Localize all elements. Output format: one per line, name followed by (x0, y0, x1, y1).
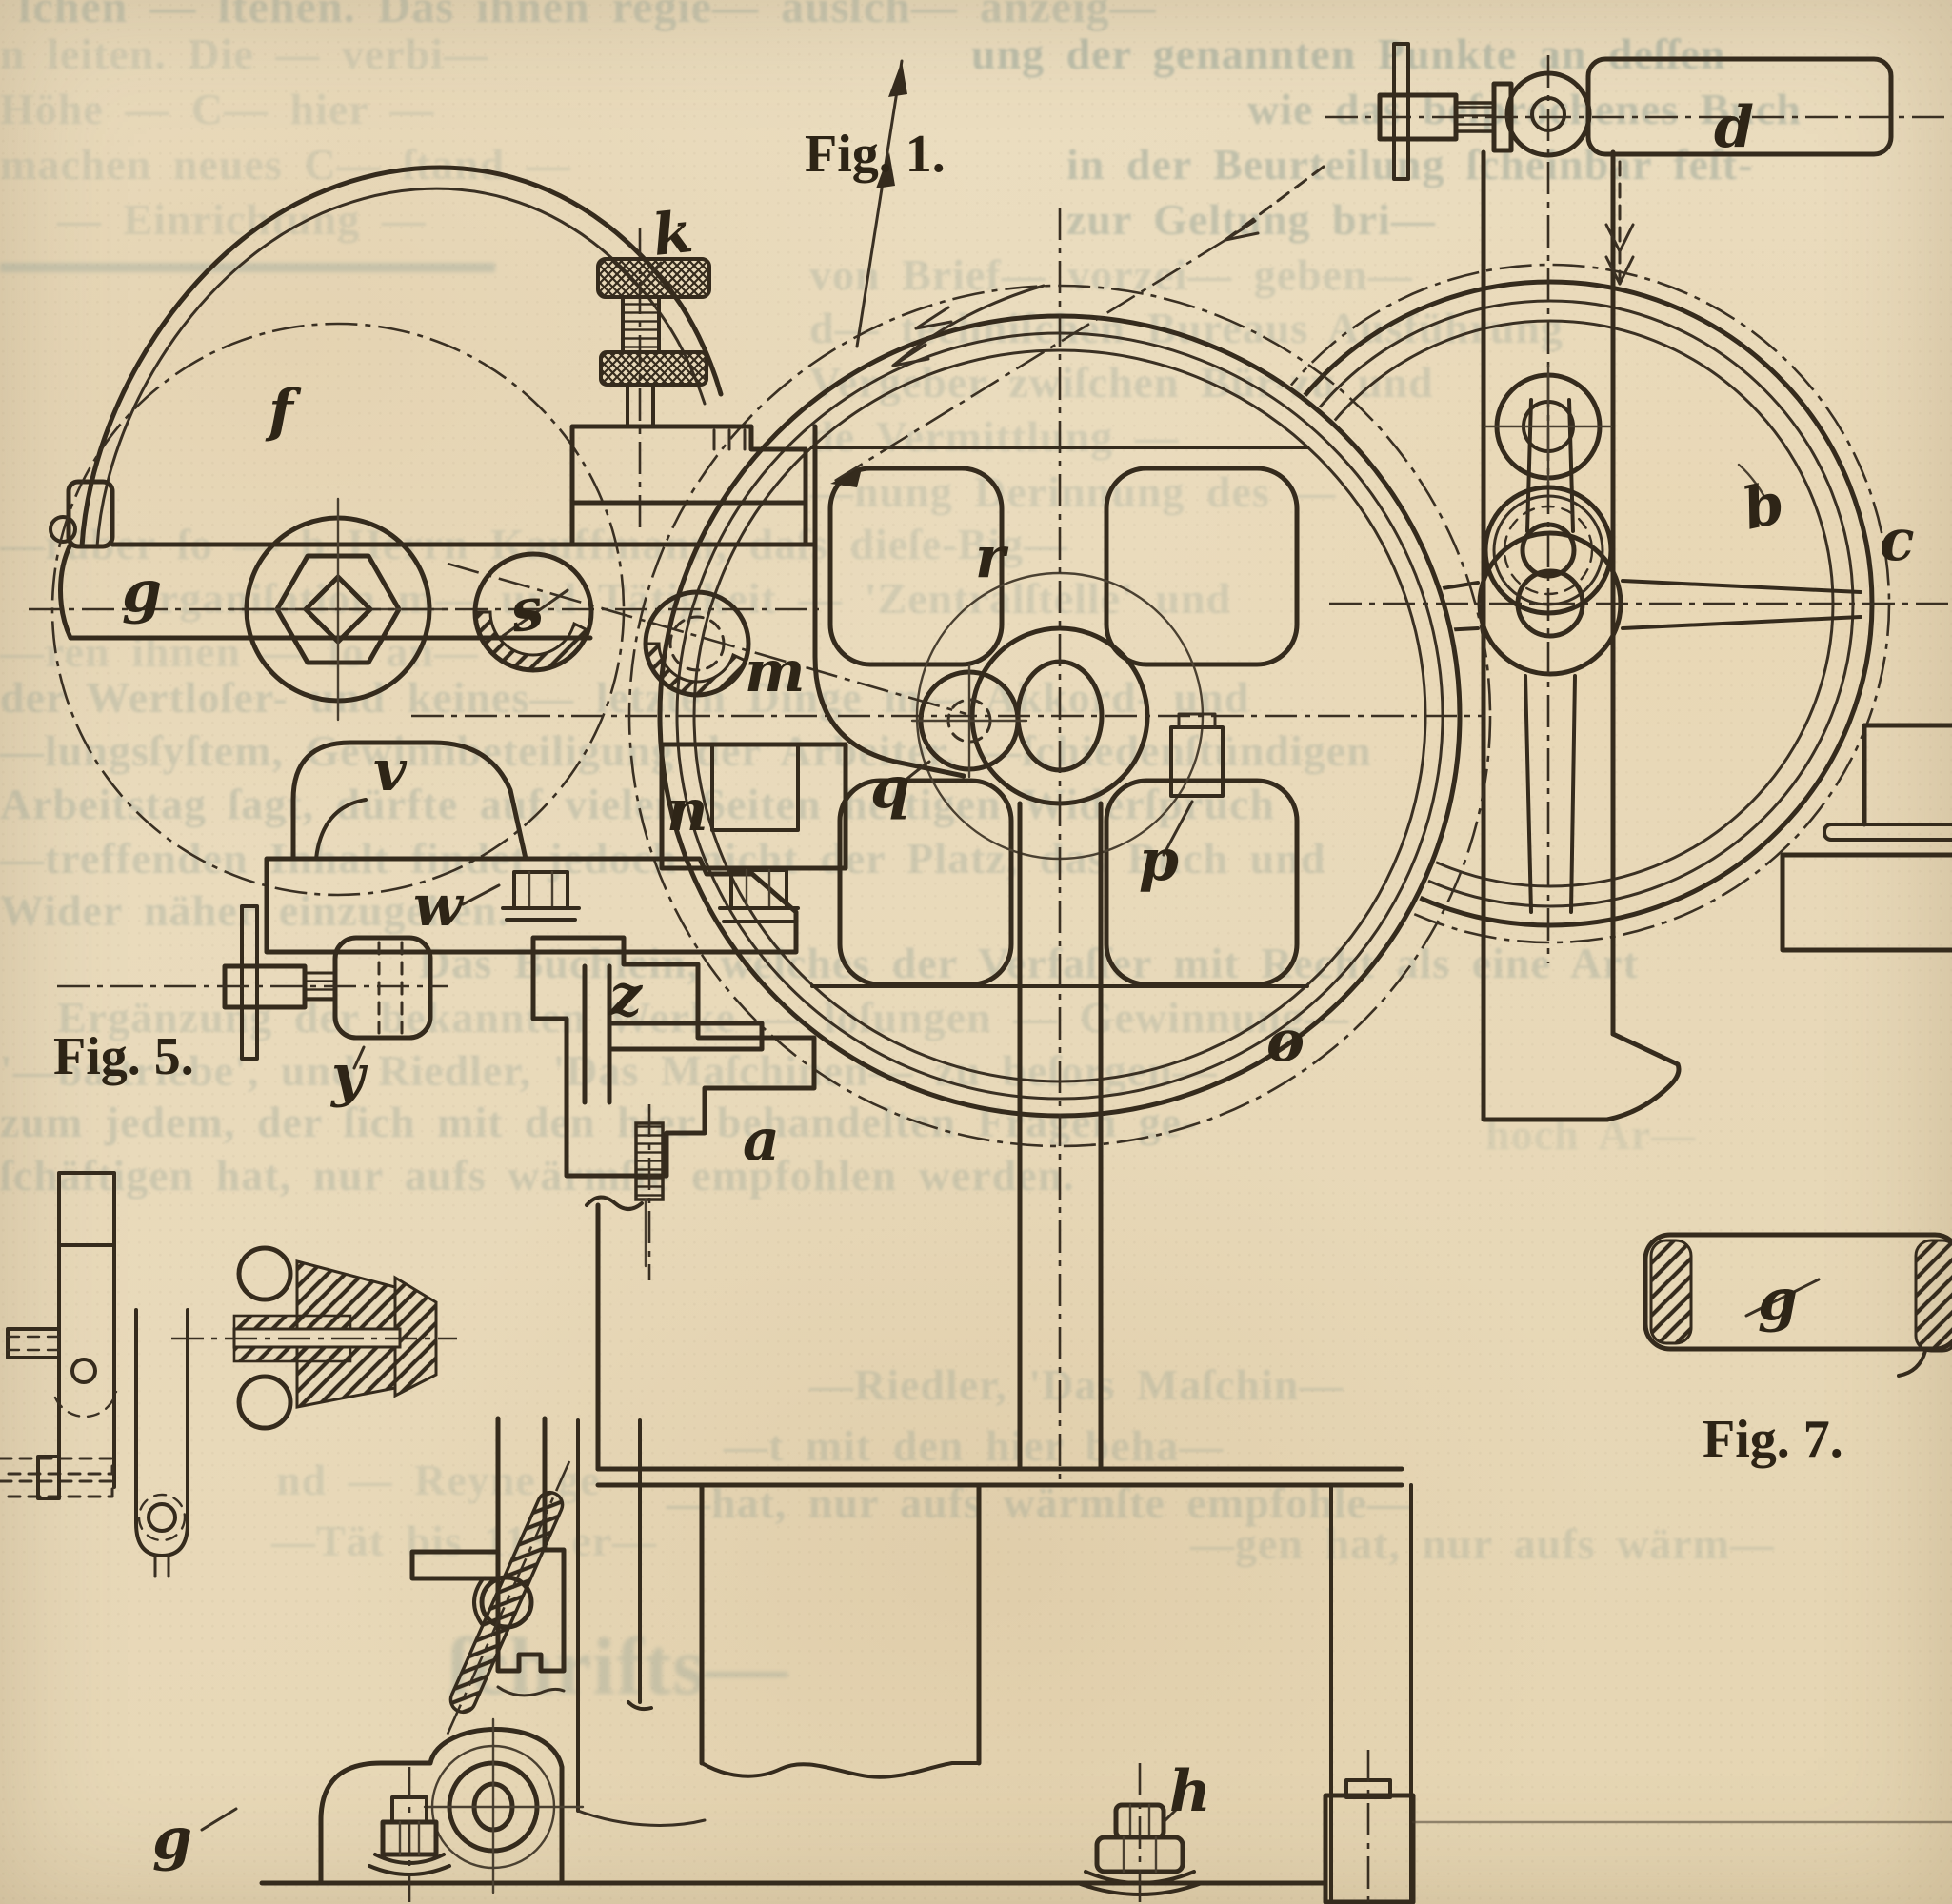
label-m: m (745, 639, 806, 705)
fig7-roller (1645, 1235, 1952, 1376)
w-leader (463, 885, 499, 904)
column-torn-edge (702, 1763, 979, 1777)
roller-end-hatched-left (1651, 1240, 1691, 1343)
plate-torn (498, 1687, 564, 1696)
label-h: h (1169, 1758, 1211, 1825)
label-p: p (1139, 827, 1179, 894)
key-block-p (1171, 727, 1223, 796)
label-g-bottom: g (152, 1806, 192, 1873)
flange-plate (1824, 824, 1952, 840)
inclined-pin (447, 1489, 566, 1716)
label-g-roller: g (1758, 1267, 1798, 1334)
scanned-patent-plate-page: ſchen — ſtehen. Das ihnen regie— ausſch—… (0, 0, 1952, 1904)
right-wheel (1211, 55, 1952, 963)
base-bolt-a (503, 872, 579, 920)
fig5-plate-right (136, 1310, 188, 1556)
fig5-tab (59, 1173, 114, 1245)
strap-foot (1484, 1034, 1679, 1120)
label-z: z (608, 962, 644, 1029)
threaded-shank (1456, 103, 1494, 131)
caption-fig1: Fig. 1. (805, 125, 946, 184)
spoke-window-se (1106, 781, 1297, 984)
bracket-v (293, 743, 526, 859)
label-y: y (329, 1042, 368, 1109)
long-arrow (857, 61, 902, 347)
label-o: o (1266, 1008, 1305, 1075)
column-sides (702, 1485, 979, 1763)
label-g-arm: g (122, 559, 162, 625)
label-r: r (975, 525, 1009, 591)
lower-block (1783, 855, 1952, 950)
caption-fig7: Fig. 7. (1703, 1410, 1843, 1469)
torn-line-2 (578, 1811, 705, 1825)
right-slide (1331, 1485, 1411, 1902)
roller-detail-curve (1899, 1351, 1925, 1376)
t-handle-pin (1394, 44, 1408, 179)
left-mechanism (29, 168, 964, 952)
patent-drawing-canvas: Fig. 1. Fig. 5. Fig. 7. k f g s m n v w … (0, 0, 1952, 1904)
g-bottom-leader (202, 1809, 236, 1830)
label-a: a (743, 1107, 780, 1174)
label-f: f (265, 378, 302, 445)
label-c: c (1880, 507, 1915, 574)
label-k: k (649, 199, 696, 269)
roller-end-hatched-right (1916, 1240, 1952, 1351)
fig5-pin (8, 1329, 59, 1358)
label-n: n (667, 778, 708, 844)
wing-nut-section (171, 1248, 457, 1428)
label-q: q (870, 755, 910, 822)
lever-arm (412, 1552, 498, 1578)
y-pin (242, 906, 257, 1059)
label-b: b (1738, 469, 1791, 543)
lever-plate (412, 1418, 569, 1738)
label-v: v (373, 738, 408, 804)
label-w: w (413, 873, 465, 940)
table-edge (598, 1469, 1402, 1485)
fig5-detail (0, 1173, 569, 1738)
caption-fig5: Fig. 5. (53, 1027, 194, 1086)
hat-block (1864, 725, 1952, 824)
strip-left (578, 1420, 651, 1811)
fig5-plate-left (59, 1245, 114, 1487)
label-d: d (1714, 94, 1754, 161)
spoke-window-sw (840, 781, 1011, 984)
roller-mount (202, 1719, 583, 1902)
knurled-screw-k (572, 228, 806, 545)
right-edge-blocks (1783, 725, 1952, 950)
